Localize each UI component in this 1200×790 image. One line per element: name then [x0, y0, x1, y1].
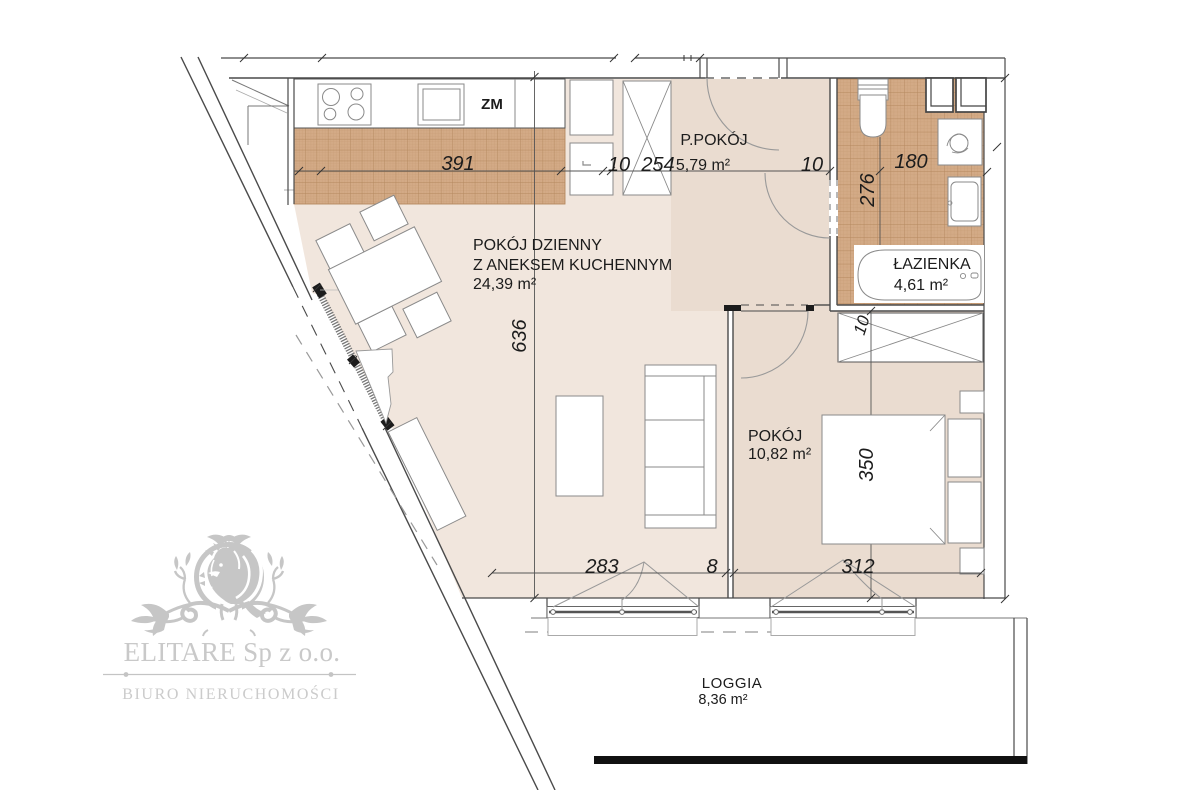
svg-text:P.POKÓJ: P.POKÓJ	[680, 130, 747, 149]
svg-text:283: 283	[584, 556, 618, 578]
svg-text:ZM: ZM	[481, 96, 503, 113]
svg-text:636: 636	[509, 318, 531, 352]
svg-text:312: 312	[841, 556, 874, 578]
svg-text:BIURO NIERUCHOMOŚCI: BIURO NIERUCHOMOŚCI	[122, 684, 340, 703]
svg-text:LOGGIA: LOGGIA	[702, 675, 763, 692]
svg-text:8,36 m²: 8,36 m²	[698, 692, 747, 708]
svg-text:8: 8	[706, 556, 717, 578]
svg-text:ELITARE Sp z o.o.: ELITARE Sp z o.o.	[124, 637, 341, 667]
svg-text:10: 10	[608, 154, 630, 176]
svg-text:4,61 m²: 4,61 m²	[894, 277, 949, 294]
svg-text:ŁAZIENKA: ŁAZIENKA	[893, 256, 971, 273]
svg-text:180: 180	[894, 151, 927, 173]
svg-text:10: 10	[801, 154, 823, 176]
svg-text:POKÓJ: POKÓJ	[748, 426, 802, 445]
svg-text:10,82 m²: 10,82 m²	[748, 446, 812, 463]
svg-text:391: 391	[441, 153, 474, 175]
svg-text:5,79 m²: 5,79 m²	[676, 157, 731, 174]
svg-text:Z ANEKSEM KUCHENNYM: Z ANEKSEM KUCHENNYM	[473, 257, 672, 274]
svg-text:24,39 m²: 24,39 m²	[473, 276, 537, 293]
svg-text:POKÓJ DZIENNY: POKÓJ DZIENNY	[473, 235, 602, 254]
svg-text:276: 276	[857, 172, 879, 207]
svg-text:254: 254	[640, 154, 674, 176]
svg-text:350: 350	[856, 448, 878, 481]
